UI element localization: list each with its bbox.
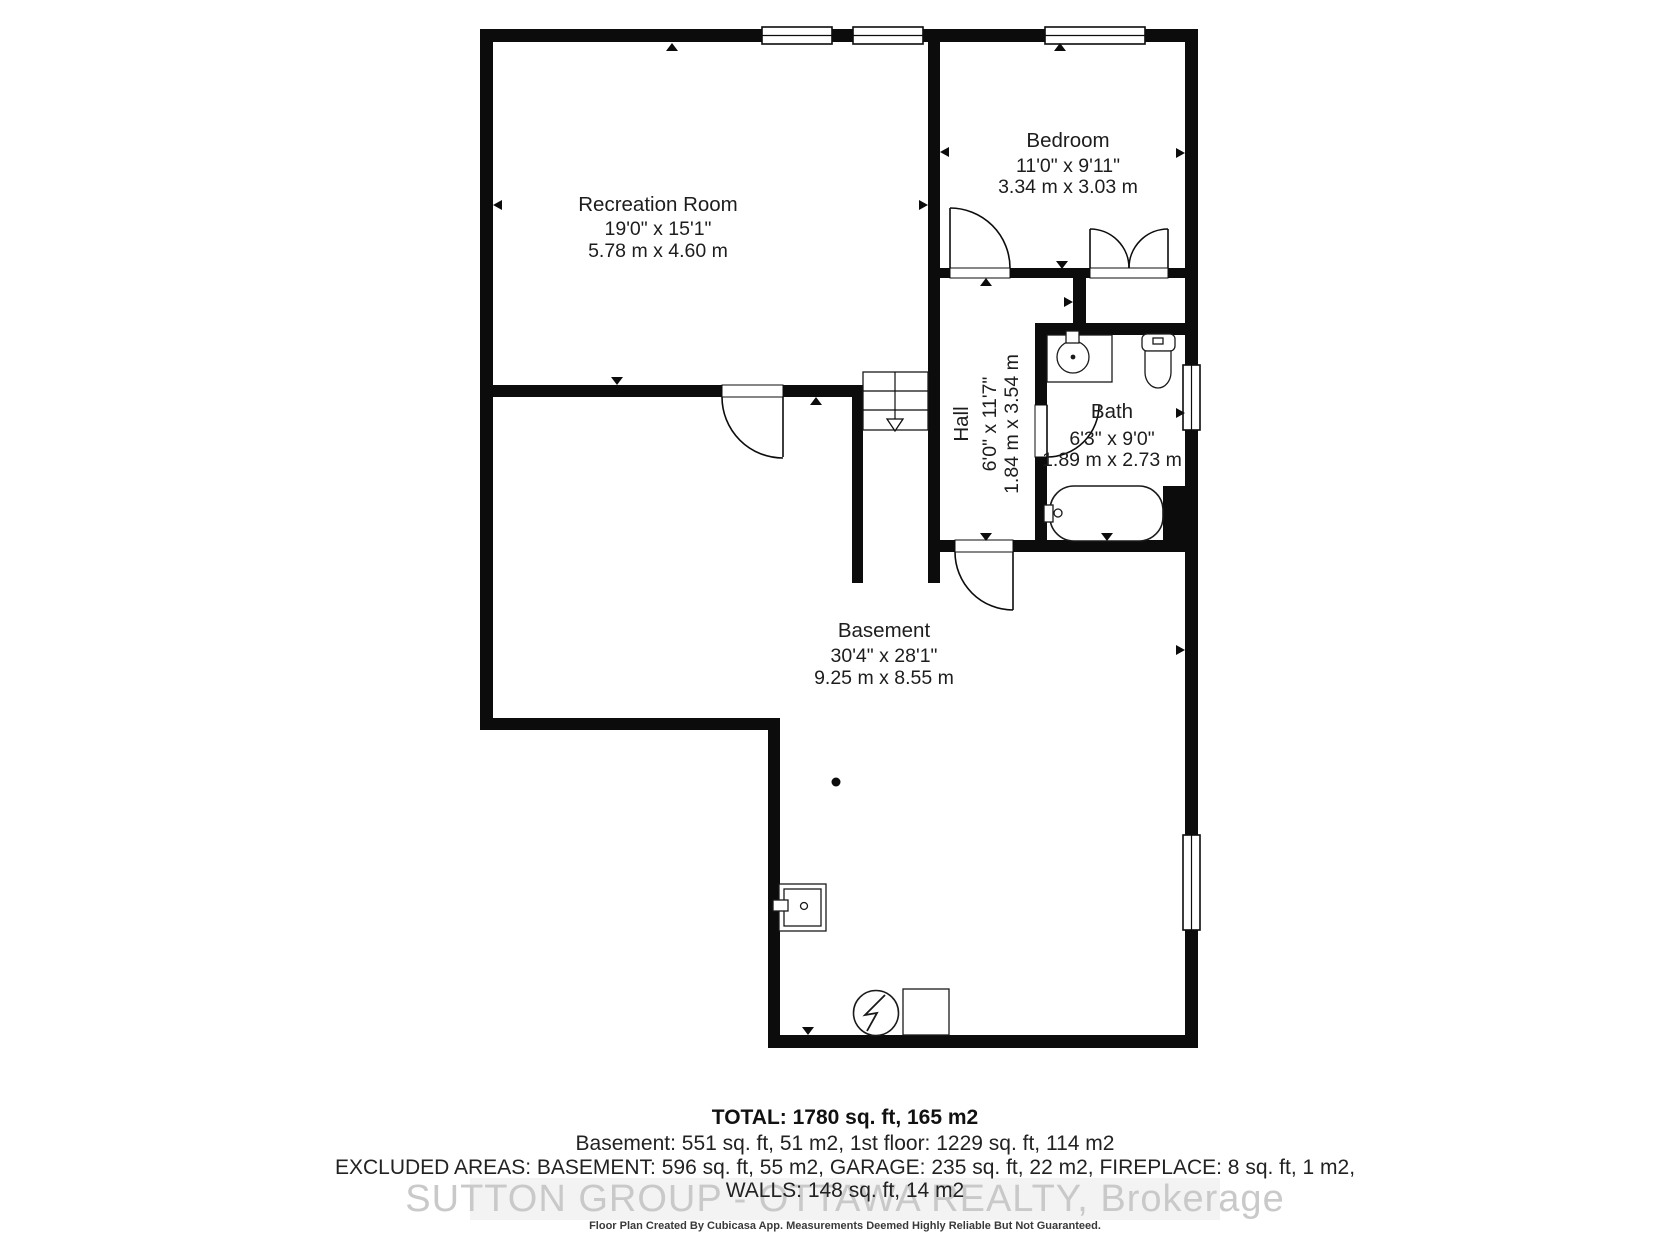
furnace-icon (854, 991, 899, 1036)
svg-text:Basement: Basement (838, 619, 931, 642)
laundry-tub-icon (773, 884, 826, 931)
bathtub-icon (1044, 486, 1163, 541)
excluded-areas-line: EXCLUDED AREAS: BASEMENT: 596 sq. ft, 55… (335, 1156, 1355, 1179)
door-bedroom (950, 208, 1010, 268)
room-label-bedroom: Bedroom 11'0" x 9'11" 3.34 m x 3.03 m (998, 129, 1138, 198)
svg-text:1.89 m x 2.73 m: 1.89 m x 2.73 m (1042, 449, 1182, 471)
svg-text:Hall: Hall (950, 406, 973, 441)
svg-text:Bedroom: Bedroom (1026, 129, 1109, 152)
total-area-line: TOTAL: 1780 sq. ft, 165 m2 (712, 1106, 978, 1129)
svg-text:19'0" x 15'1": 19'0" x 15'1" (605, 218, 712, 240)
toilet-icon (1142, 334, 1175, 388)
disclaimer-text: Floor Plan Created By Cubicasa App. Meas… (589, 1220, 1101, 1232)
double-door-bedroom-closet (1090, 229, 1168, 268)
window-basement-right (1183, 835, 1200, 930)
windows (762, 27, 1200, 930)
room-label-hall: Hall 6'0" x 11'7" 1.84 m x 3.54 m (950, 354, 1023, 494)
floor-plan-canvas: Recreation Room 19'0" x 15'1" 5.78 m x 4… (0, 0, 1680, 1260)
svg-text:Recreation Room: Recreation Room (578, 193, 738, 216)
svg-text:11'0" x 9'11": 11'0" x 9'11" (1016, 155, 1120, 177)
svg-text:30'4" x 28'1": 30'4" x 28'1" (831, 645, 938, 667)
door-recreation-to-basement (722, 397, 783, 458)
room-label-recreation: Recreation Room 19'0" x 15'1" 5.78 m x 4… (578, 193, 738, 262)
window-bedroom-top (1045, 27, 1145, 44)
svg-text:3.34 m x 3.03 m: 3.34 m x 3.03 m (998, 176, 1138, 198)
walls-area-line: WALLS: 148 sq. ft, 14 m2 (726, 1179, 965, 1202)
window-top-middle (853, 27, 923, 44)
svg-text:6'3" x 9'0": 6'3" x 9'0" (1069, 428, 1154, 450)
svg-text:Bath: Bath (1091, 400, 1133, 423)
door-hall-to-basement (955, 552, 1013, 610)
stairs-down-icon (863, 372, 928, 431)
window-bath-right (1183, 365, 1200, 430)
svg-text:9.25 m x 8.55 m: 9.25 m x 8.55 m (814, 667, 954, 689)
floor-plan-page: Recreation Room 19'0" x 15'1" 5.78 m x 4… (0, 0, 1680, 1260)
room-label-bath: Bath 6'3" x 9'0" 1.89 m x 2.73 m (1042, 400, 1182, 471)
room-label-basement: Basement 30'4" x 28'1" 9.25 m x 8.55 m (814, 619, 954, 689)
window-top-left (762, 27, 832, 44)
floor-areas-line: Basement: 551 sq. ft, 51 m2, 1st floor: … (576, 1132, 1115, 1155)
svg-text:1.84 m x 3.54 m: 1.84 m x 3.54 m (1001, 354, 1023, 494)
svg-text:6'0" x 11'7": 6'0" x 11'7" (979, 377, 1001, 472)
support-column (832, 778, 841, 787)
svg-text:5.78 m x 4.60 m: 5.78 m x 4.60 m (588, 240, 728, 262)
bath-sink-icon (1047, 331, 1112, 382)
water-heater-icon (903, 989, 949, 1035)
wall-chunk-right-of-tub (1163, 486, 1185, 540)
